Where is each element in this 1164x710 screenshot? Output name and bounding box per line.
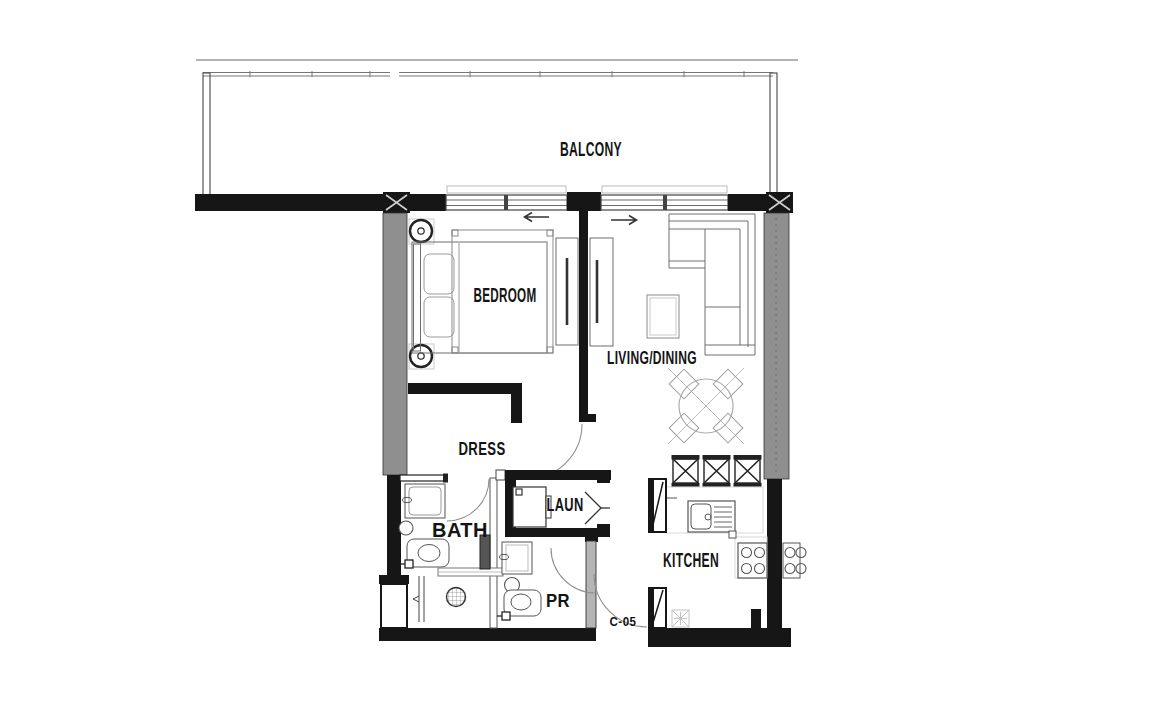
living-dining-label: LIVING/DINING bbox=[607, 347, 697, 368]
bath-pr-partition bbox=[490, 478, 497, 628]
bath-wall bbox=[400, 475, 447, 481]
balcony: BALCONY bbox=[196, 60, 798, 195]
floor-plan: BALCONY bbox=[0, 0, 1164, 710]
coffee-table bbox=[647, 295, 679, 338]
bar-stool-icon bbox=[734, 455, 762, 487]
wall-segment bbox=[379, 628, 596, 641]
wall-segment bbox=[410, 194, 446, 211]
wall-post bbox=[597, 524, 610, 537]
washing-machine bbox=[513, 487, 551, 527]
service-niche bbox=[381, 584, 407, 628]
pier-gray bbox=[383, 213, 407, 475]
entry-door-leaf bbox=[649, 588, 666, 628]
bifold-door-icon bbox=[585, 492, 610, 524]
sliding-direction-arrow-right-icon bbox=[611, 216, 637, 225]
bath-toilet bbox=[400, 539, 449, 568]
wardrobe bbox=[556, 238, 578, 345]
wall-segment bbox=[379, 575, 409, 584]
dress-wall-stub bbox=[511, 394, 522, 423]
nightstand-bottom bbox=[409, 344, 434, 369]
balcony-rail-left-post bbox=[203, 73, 210, 195]
bath-basin bbox=[399, 521, 413, 535]
shower-drain bbox=[447, 588, 466, 607]
floor-plan-drawing: BALCONY bbox=[0, 0, 1164, 710]
wall-post bbox=[585, 528, 598, 542]
wall-segment bbox=[767, 479, 782, 630]
bedroom: BEDROOM bbox=[409, 219, 578, 369]
kitchen-hob bbox=[738, 543, 767, 578]
dress-label: DRESS bbox=[459, 438, 506, 459]
powder-room-label: PR bbox=[546, 590, 570, 611]
kitchen-sink bbox=[688, 501, 736, 538]
laundry: LAUN bbox=[496, 470, 611, 537]
bar-stools bbox=[672, 455, 762, 487]
window-living bbox=[601, 186, 728, 210]
shower-screen bbox=[413, 576, 424, 622]
wall-foot bbox=[579, 414, 596, 422]
pr-cabinet bbox=[500, 542, 533, 574]
sliding-direction-arrow-left-icon bbox=[525, 213, 550, 222]
laundry-wall-top bbox=[505, 470, 611, 480]
bedroom-label: BEDROOM bbox=[474, 284, 537, 306]
exterior-south-wall bbox=[379, 609, 791, 647]
bath-door-arc bbox=[447, 479, 489, 521]
shower-bench bbox=[438, 568, 503, 576]
window-bedroom bbox=[446, 186, 567, 210]
unit-number-label: C-05 bbox=[610, 615, 637, 629]
bar-stool-icon bbox=[703, 455, 731, 487]
wall-segment bbox=[648, 628, 791, 647]
column-marker-icon bbox=[383, 192, 410, 213]
kitchen-label: KITCHEN bbox=[663, 549, 719, 571]
door-jamb bbox=[443, 474, 448, 483]
bar-stool-icon bbox=[672, 455, 700, 487]
sofa bbox=[669, 214, 755, 355]
laundry-label: LAUN bbox=[547, 494, 584, 515]
balcony-label: BALCONY bbox=[560, 138, 622, 160]
bath-vanity bbox=[403, 484, 446, 518]
entry: C-05 bbox=[594, 574, 689, 629]
neighbour-hob-partial bbox=[783, 543, 806, 578]
balcony-railing bbox=[203, 71, 773, 77]
door-jamb bbox=[496, 470, 505, 480]
wall-post bbox=[597, 470, 610, 483]
tv-unit bbox=[590, 238, 613, 346]
entry-floor-tile bbox=[672, 610, 689, 627]
bath-label: BATH bbox=[432, 519, 488, 541]
pr-toilet bbox=[497, 590, 541, 620]
kitchen-tall-unit bbox=[649, 479, 666, 532]
bedroom-dress-wall bbox=[408, 383, 522, 394]
bathroom: BATH bbox=[399, 474, 503, 629]
dining-set bbox=[668, 368, 744, 444]
living-dining: LIVING/DINING bbox=[590, 214, 755, 444]
powder-room: PR bbox=[497, 528, 598, 628]
wall-segment bbox=[728, 194, 766, 211]
wall-step bbox=[751, 609, 761, 629]
bedroom-living-wall bbox=[579, 206, 588, 422]
column-marker-icon bbox=[766, 192, 793, 213]
nightstand-top bbox=[409, 219, 434, 244]
wall-segment bbox=[195, 194, 385, 211]
balcony-rail-right-post bbox=[770, 73, 777, 195]
